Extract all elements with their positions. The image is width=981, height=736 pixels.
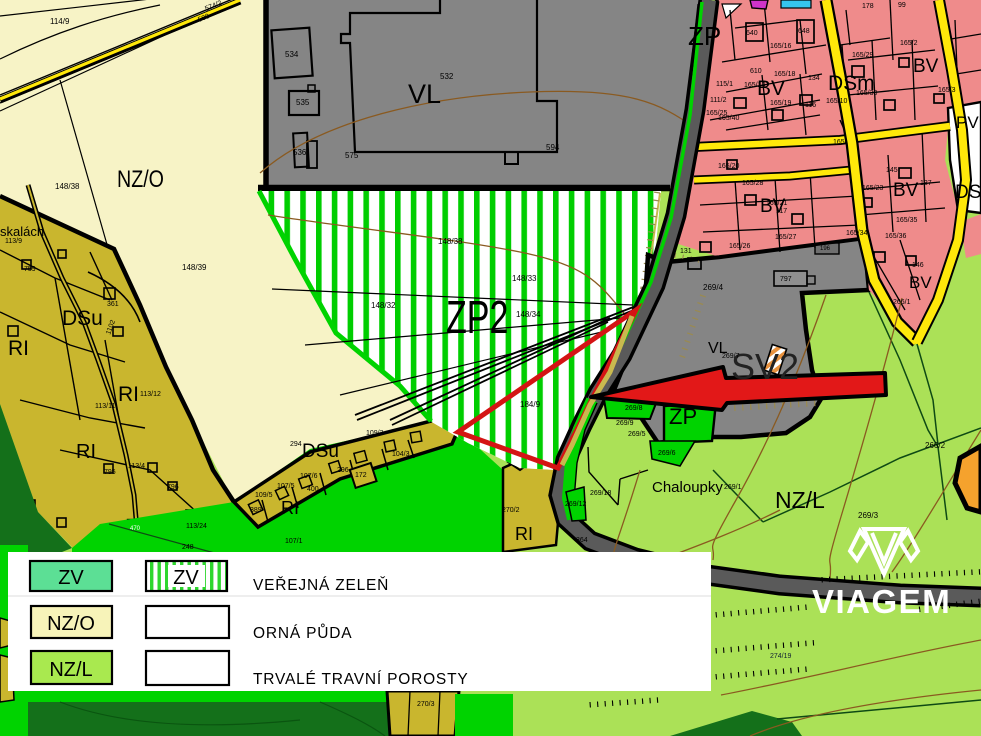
- svg-text:VEŘEJNÁ ZELEŇ: VEŘEJNÁ ZELEŇ: [253, 577, 389, 594]
- svg-text:107/6: 107/6: [300, 473, 318, 480]
- svg-text:364: 364: [576, 537, 588, 544]
- svg-text:DS: DS: [955, 182, 981, 203]
- svg-text:269/6: 269/6: [658, 450, 676, 457]
- svg-text:RI: RI: [118, 383, 139, 406]
- svg-text:797: 797: [780, 276, 792, 283]
- svg-text:165/29: 165/29: [852, 52, 874, 59]
- svg-text:575: 575: [345, 151, 359, 160]
- svg-text:ZP2: ZP2: [446, 291, 508, 343]
- svg-text:ZP: ZP: [688, 21, 721, 51]
- svg-text:165/35: 165/35: [896, 217, 918, 224]
- svg-text:165/23: 165/23: [862, 185, 884, 192]
- svg-text:107/1: 107/1: [285, 538, 303, 545]
- svg-text:109/5: 109/5: [255, 492, 273, 499]
- svg-text:109/3: 109/3: [366, 430, 384, 437]
- svg-text:134: 134: [808, 75, 820, 82]
- svg-text:532: 532: [440, 72, 454, 81]
- svg-text:165/19: 165/19: [770, 100, 792, 107]
- svg-text:536: 536: [293, 148, 307, 157]
- svg-text:389: 389: [250, 507, 262, 514]
- svg-text:145: 145: [886, 167, 898, 174]
- svg-text:107/5: 107/5: [277, 483, 295, 490]
- svg-text:470: 470: [130, 526, 141, 532]
- svg-text:117: 117: [776, 208, 787, 215]
- svg-text:148/38: 148/38: [55, 182, 80, 191]
- svg-text:VIAGEM: VIAGEM: [812, 583, 951, 620]
- svg-text:269/18: 269/18: [590, 490, 612, 497]
- svg-text:165/27: 165/27: [775, 234, 797, 241]
- svg-text:NZ/L: NZ/L: [775, 487, 825, 513]
- svg-text:610: 610: [750, 68, 762, 75]
- svg-text:RI: RI: [515, 524, 533, 544]
- svg-text:165/30: 165/30: [856, 90, 878, 97]
- svg-text:296: 296: [337, 467, 349, 474]
- svg-text:113/24: 113/24: [186, 523, 207, 530]
- svg-text:165/18: 165/18: [774, 71, 796, 78]
- svg-text:111/2: 111/2: [710, 97, 727, 104]
- svg-text:165/26: 165/26: [729, 243, 751, 250]
- svg-text:RI: RI: [76, 441, 96, 463]
- svg-text:Chaloupky: Chaloupky: [652, 479, 723, 496]
- svg-text:266/1: 266/1: [893, 299, 911, 306]
- svg-text:148/34: 148/34: [516, 310, 541, 319]
- svg-text:ZV: ZV: [58, 567, 84, 589]
- svg-text:594: 594: [546, 143, 560, 152]
- svg-text:skalách: skalách: [0, 224, 44, 239]
- svg-text:165/14: 165/14: [744, 82, 766, 89]
- svg-text:NZ/L: NZ/L: [49, 659, 92, 681]
- svg-text:BV: BV: [893, 180, 919, 201]
- svg-text:361: 361: [107, 301, 119, 308]
- svg-text:116: 116: [805, 102, 816, 109]
- svg-text:BV: BV: [913, 56, 939, 77]
- svg-text:178: 178: [862, 3, 874, 10]
- svg-text:534: 534: [285, 50, 299, 59]
- svg-text:131: 131: [680, 248, 692, 255]
- svg-text:DSu: DSu: [302, 441, 339, 462]
- svg-text:148/32: 148/32: [371, 301, 396, 310]
- svg-text:ZP: ZP: [669, 404, 697, 429]
- svg-text:269/4: 269/4: [703, 283, 724, 292]
- svg-text:270/3: 270/3: [417, 701, 435, 708]
- svg-text:104/3: 104/3: [392, 451, 410, 458]
- svg-text:TRVALÉ TRAVNÍ POROSTY: TRVALÉ TRAVNÍ POROSTY: [253, 671, 468, 688]
- svg-text:115/1: 115/1: [716, 81, 733, 88]
- svg-text:146: 146: [912, 262, 924, 269]
- svg-text:269/5: 269/5: [628, 431, 646, 438]
- svg-text:NZ/O: NZ/O: [117, 165, 164, 192]
- svg-text:PV: PV: [956, 113, 979, 132]
- svg-text:294: 294: [290, 441, 302, 448]
- svg-text:648: 648: [798, 28, 810, 35]
- svg-text:266/2: 266/2: [925, 441, 946, 450]
- svg-text:113/12: 113/12: [140, 391, 161, 398]
- svg-text:165/25: 165/25: [706, 110, 728, 117]
- svg-text:640: 640: [746, 30, 758, 37]
- svg-text:269/9: 269/9: [616, 420, 634, 427]
- svg-text:165/20: 165/20: [718, 163, 740, 170]
- svg-text:137: 137: [920, 180, 932, 187]
- svg-text:99: 99: [898, 2, 906, 9]
- svg-text:RI: RI: [8, 337, 29, 360]
- svg-text:165/36: 165/36: [885, 233, 907, 240]
- svg-text:759: 759: [24, 266, 36, 273]
- svg-text:274/19: 274/19: [770, 653, 792, 660]
- svg-text:196: 196: [820, 246, 831, 252]
- svg-text:148/33: 148/33: [512, 274, 537, 283]
- svg-text:165/34: 165/34: [846, 230, 868, 237]
- svg-text:165/: 165/: [833, 139, 847, 146]
- svg-text:269/1: 269/1: [724, 484, 742, 491]
- svg-text:DSu: DSu: [62, 307, 103, 330]
- svg-text:535: 535: [296, 98, 310, 107]
- svg-text:269/3: 269/3: [858, 511, 879, 520]
- svg-text:796: 796: [167, 484, 179, 491]
- svg-text:RI: RI: [281, 498, 299, 518]
- svg-text:113/11: 113/11: [95, 403, 115, 410]
- svg-text:148/38: 148/38: [438, 237, 463, 246]
- svg-text:NZ/O: NZ/O: [47, 613, 95, 635]
- svg-text:113/4: 113/4: [128, 463, 145, 470]
- svg-text:269/12: 269/12: [565, 501, 587, 508]
- svg-text:172: 172: [355, 472, 367, 479]
- svg-text:269/7: 269/7: [722, 353, 740, 360]
- svg-text:165/28: 165/28: [742, 180, 764, 187]
- svg-text:148/39: 148/39: [182, 263, 207, 272]
- svg-text:VL: VL: [408, 79, 441, 109]
- svg-text:165/16: 165/16: [770, 43, 792, 50]
- svg-text:BV: BV: [909, 273, 932, 292]
- svg-text:795: 795: [104, 469, 116, 476]
- svg-text:184/9: 184/9: [520, 400, 541, 409]
- svg-text:165/3: 165/3: [938, 87, 956, 94]
- svg-text:400: 400: [307, 486, 319, 493]
- svg-text:269/8: 269/8: [625, 405, 643, 412]
- svg-text:ZV: ZV: [173, 567, 199, 589]
- svg-text:ORNÁ PŮDA: ORNÁ PŮDA: [253, 624, 352, 642]
- svg-text:165/21: 165/21: [766, 200, 788, 207]
- svg-text:165/10: 165/10: [826, 98, 848, 105]
- svg-text:114/9: 114/9: [50, 17, 70, 26]
- svg-text:SV2: SV2: [731, 346, 799, 387]
- svg-text:113/9: 113/9: [5, 238, 22, 245]
- svg-text:270/2: 270/2: [502, 507, 520, 514]
- svg-text:165/2: 165/2: [900, 40, 918, 47]
- svg-text:248: 248: [182, 544, 194, 551]
